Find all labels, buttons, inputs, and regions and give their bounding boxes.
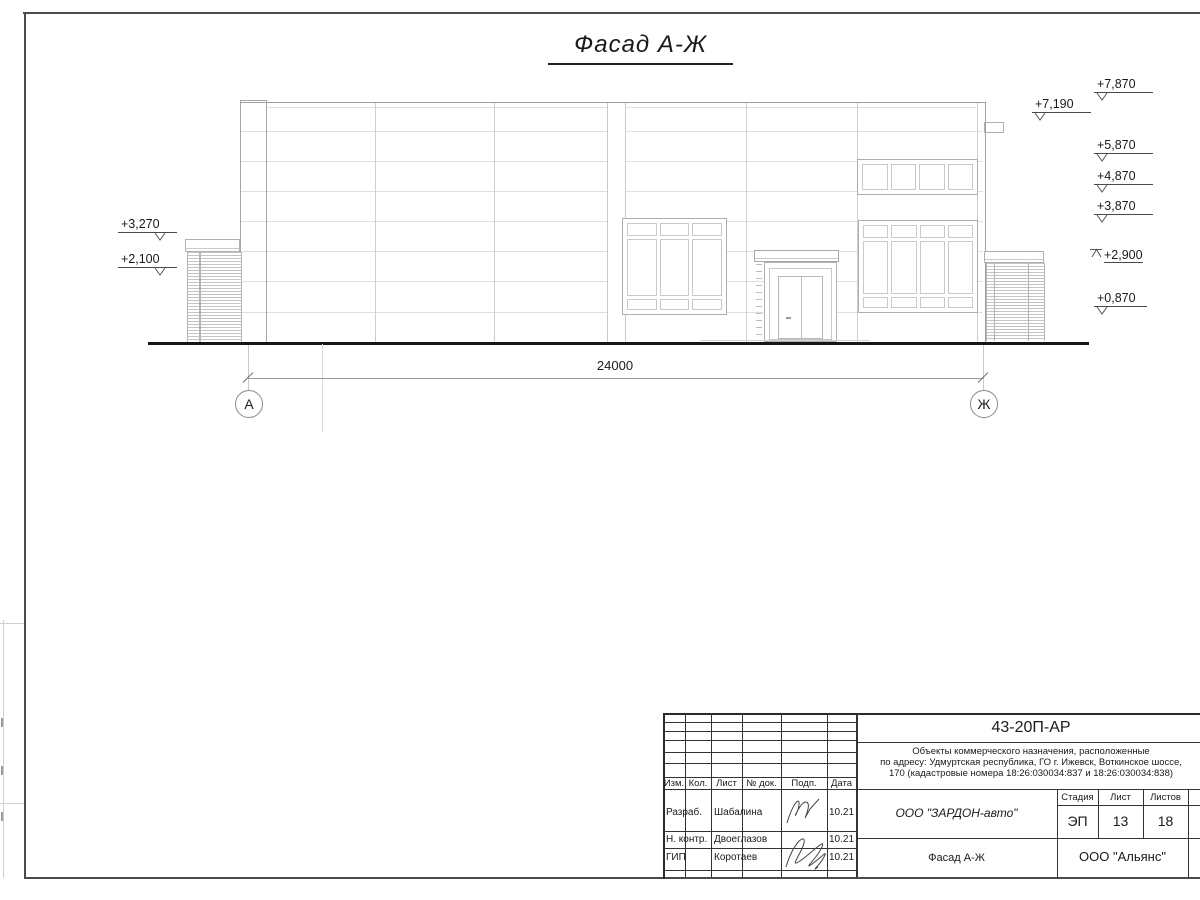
axis-bubble-zh: Ж (970, 390, 998, 418)
louver-cap (185, 239, 240, 252)
elevation-mark: +3,870 (1094, 199, 1153, 215)
extension-line (983, 345, 984, 392)
sheet-label: Лист (1098, 792, 1143, 803)
drawing-sheet: Фасад А-Ж (0, 0, 1200, 900)
elevation-marker-down-icon (1096, 153, 1109, 162)
elevation-marker-down-icon (1096, 92, 1109, 101)
entrance-door (764, 262, 837, 342)
elevation-mark: +7,190 (1032, 97, 1091, 113)
col-header-ndok: № док. (742, 778, 781, 789)
clerestory-window (857, 159, 978, 195)
signature-icon (780, 827, 832, 875)
extension-line (248, 345, 249, 392)
name-cell: Двоеглазов (714, 834, 767, 845)
side-stamp-line (0, 623, 24, 624)
side-stamp-text-mark (1, 718, 3, 727)
elevation-marker-down-icon (154, 232, 167, 241)
louver-panel (187, 252, 200, 342)
role-cell: Н. контр. (666, 834, 707, 845)
elevation-marker-down-icon (1096, 214, 1109, 223)
frame-left (24, 12, 26, 879)
frame-top (23, 12, 1200, 14)
louver-panel (986, 263, 1045, 341)
louver-cap (984, 251, 1044, 263)
project-description: Объекты коммерческого назначения, распол… (859, 746, 1200, 779)
frame-bottom (24, 877, 1200, 879)
signature-icon (783, 793, 827, 831)
facade-mullion-line (494, 103, 495, 342)
sheets-value: 18 (1143, 813, 1188, 829)
stage-label: Стадия (1057, 792, 1098, 803)
facade-mullion-line (746, 103, 747, 342)
louver-stile (994, 263, 995, 341)
doc-number: 43-20П-АР (859, 719, 1200, 737)
sheets-label: Листов (1143, 792, 1188, 803)
axis-letter: А (244, 396, 253, 412)
elevation-marker-down-icon (1096, 184, 1109, 193)
door-handle (786, 317, 791, 319)
door-split-line (801, 277, 802, 338)
side-stamp-line (0, 803, 24, 804)
title-block: Изм. Кол. Лист № док. Подп. Дата Разраб.… (663, 713, 1200, 877)
elevation-mark: +4,870 (1094, 169, 1153, 185)
extension-line (322, 344, 323, 432)
elevation-marker-up-icon (1089, 248, 1104, 258)
axis-letter: Ж (978, 396, 991, 412)
louver-stile (1028, 263, 1029, 341)
door-leaves (778, 276, 823, 339)
facade-pilaster (240, 100, 267, 344)
view-title: Фасад А-Ж (548, 31, 733, 65)
date-cell: 10.21 (827, 807, 856, 818)
side-stamp-text-mark (1, 812, 3, 821)
window-group (858, 220, 978, 313)
elevation-mark: +3,270 (118, 217, 177, 233)
drawing-name: Фасад А-Ж (856, 852, 1057, 864)
col-header-list: Лист (711, 778, 742, 789)
name-cell: Коротаев (714, 852, 757, 863)
roof-outlet (984, 122, 1004, 133)
elevation-marker-down-icon (1034, 112, 1047, 121)
col-header-data: Дата (827, 778, 856, 789)
dimension-line (248, 378, 983, 379)
sheet-value: 13 (1098, 813, 1143, 829)
company-name: ООО "ЗАРДОН-авто" (856, 806, 1057, 820)
window-group (622, 218, 727, 315)
louver-panel (200, 252, 242, 342)
side-stamp-line (3, 620, 4, 878)
stage-value: ЭП (1057, 813, 1098, 829)
elevation-mark: +2,100 (118, 252, 177, 268)
threshold-line (700, 340, 870, 341)
side-stamp-text-mark (1, 766, 3, 775)
dimension-value: 24000 (585, 358, 645, 373)
role-cell: Разраб. (666, 807, 702, 818)
axis-bubble-a: А (235, 390, 263, 418)
elevation-mark: +0,870 (1094, 291, 1147, 307)
entrance-canopy (754, 250, 839, 262)
ground-line (148, 342, 1089, 345)
name-cell: Шабалина (714, 807, 762, 818)
elevation-marker-down-icon (154, 267, 167, 276)
col-header-izm: Изм. (663, 778, 685, 789)
col-header-kol: Кол. (685, 778, 711, 789)
facade-mullion-line (375, 103, 376, 342)
elevation-mark: +7,870 (1094, 77, 1153, 93)
elevation-marker-down-icon (1096, 306, 1109, 315)
downpipe-brackets (756, 264, 762, 340)
org-name: ООО "Альянс" (1057, 849, 1188, 864)
elevation-mark: +2,900 (1089, 248, 1143, 263)
col-header-podp: Подп. (781, 778, 827, 789)
role-cell: ГИП (666, 852, 686, 863)
elevation-mark: +5,870 (1094, 138, 1153, 154)
